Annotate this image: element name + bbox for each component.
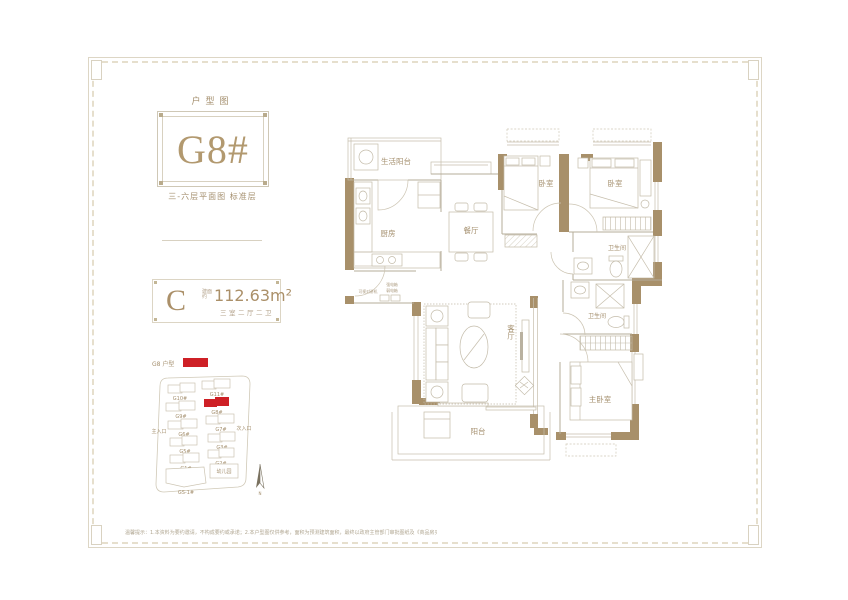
label-strong-box: 强电箱 [386,282,398,287]
kindergarten-block: 幼儿园 [210,464,238,478]
rooms-description: 三室二厅二卫 [220,307,274,317]
furniture [354,144,654,438]
site-plan-map: G8 户型 G10# G11# G9# G8# G6# G7# [130,352,300,524]
label-master-bedroom: 主卧室 [589,394,612,404]
unit-code: G8# [158,112,268,186]
frame-corner [748,525,759,545]
area-prefix: 建面约 [202,290,214,301]
label-bedroom-b: 卧室 [608,178,623,188]
compass-icon: N [256,464,264,496]
divider-line [162,240,262,241]
label-weak-box: 弱电箱 [386,288,398,293]
secondary-entrance-label: 次入口 [236,425,251,432]
label-bath-a: 卫生间 [608,244,626,252]
main-entrance-label: 主入口 [151,428,166,435]
area-badge: C 建面约 112.63m² 三室二厅二卫 [152,279,281,323]
label-kitchen: 厨房 [381,228,396,238]
frame-corner [91,525,102,545]
page-title: 户型图 [155,94,270,107]
label-dining: 餐厅 [464,226,479,235]
label-bedroom-a: 卧室 [539,178,554,188]
frame-corner [91,60,102,80]
siteplan-legend-label: G8 户型 [152,360,174,368]
label-intercom: 可视对讲机 [359,289,378,294]
svg-text:GS-1#: GS-1# [178,490,194,496]
label-living: 客厅 [506,323,515,340]
floor-plan-drawing: 生活阳台 厨房 餐厅 卧室 卧室 卫生间 卫生间 客厅 阳台 主卧室 可视对讲机… [328,116,678,496]
frame-corner [748,60,759,80]
floor-note: 三-六层平面图 标准层 [150,191,275,202]
unit-type-letter: C [166,286,186,316]
svg-text:N: N [259,491,262,496]
svg-text:幼儿园: 幼儿园 [216,468,231,475]
unit-code-frame: G8# [157,111,269,187]
area-value: 112.63m² [214,286,292,305]
floorplan-page: 户型图 G8# 三-六层平面图 标准层 C 建面约 112.63m² 三室二厅二… [0,0,848,600]
siteplan-legend-swatch [183,358,208,367]
label-bath-b: 卫生间 [588,312,606,320]
label-service-balcony: 生活阳台 [381,156,411,166]
disclaimer-text: 温馨提示：1.本资料为要约邀请，不构成要约或承诺；2.本户型图仅供参考，面积为预… [125,529,437,536]
label-balcony: 阳台 [471,426,486,436]
